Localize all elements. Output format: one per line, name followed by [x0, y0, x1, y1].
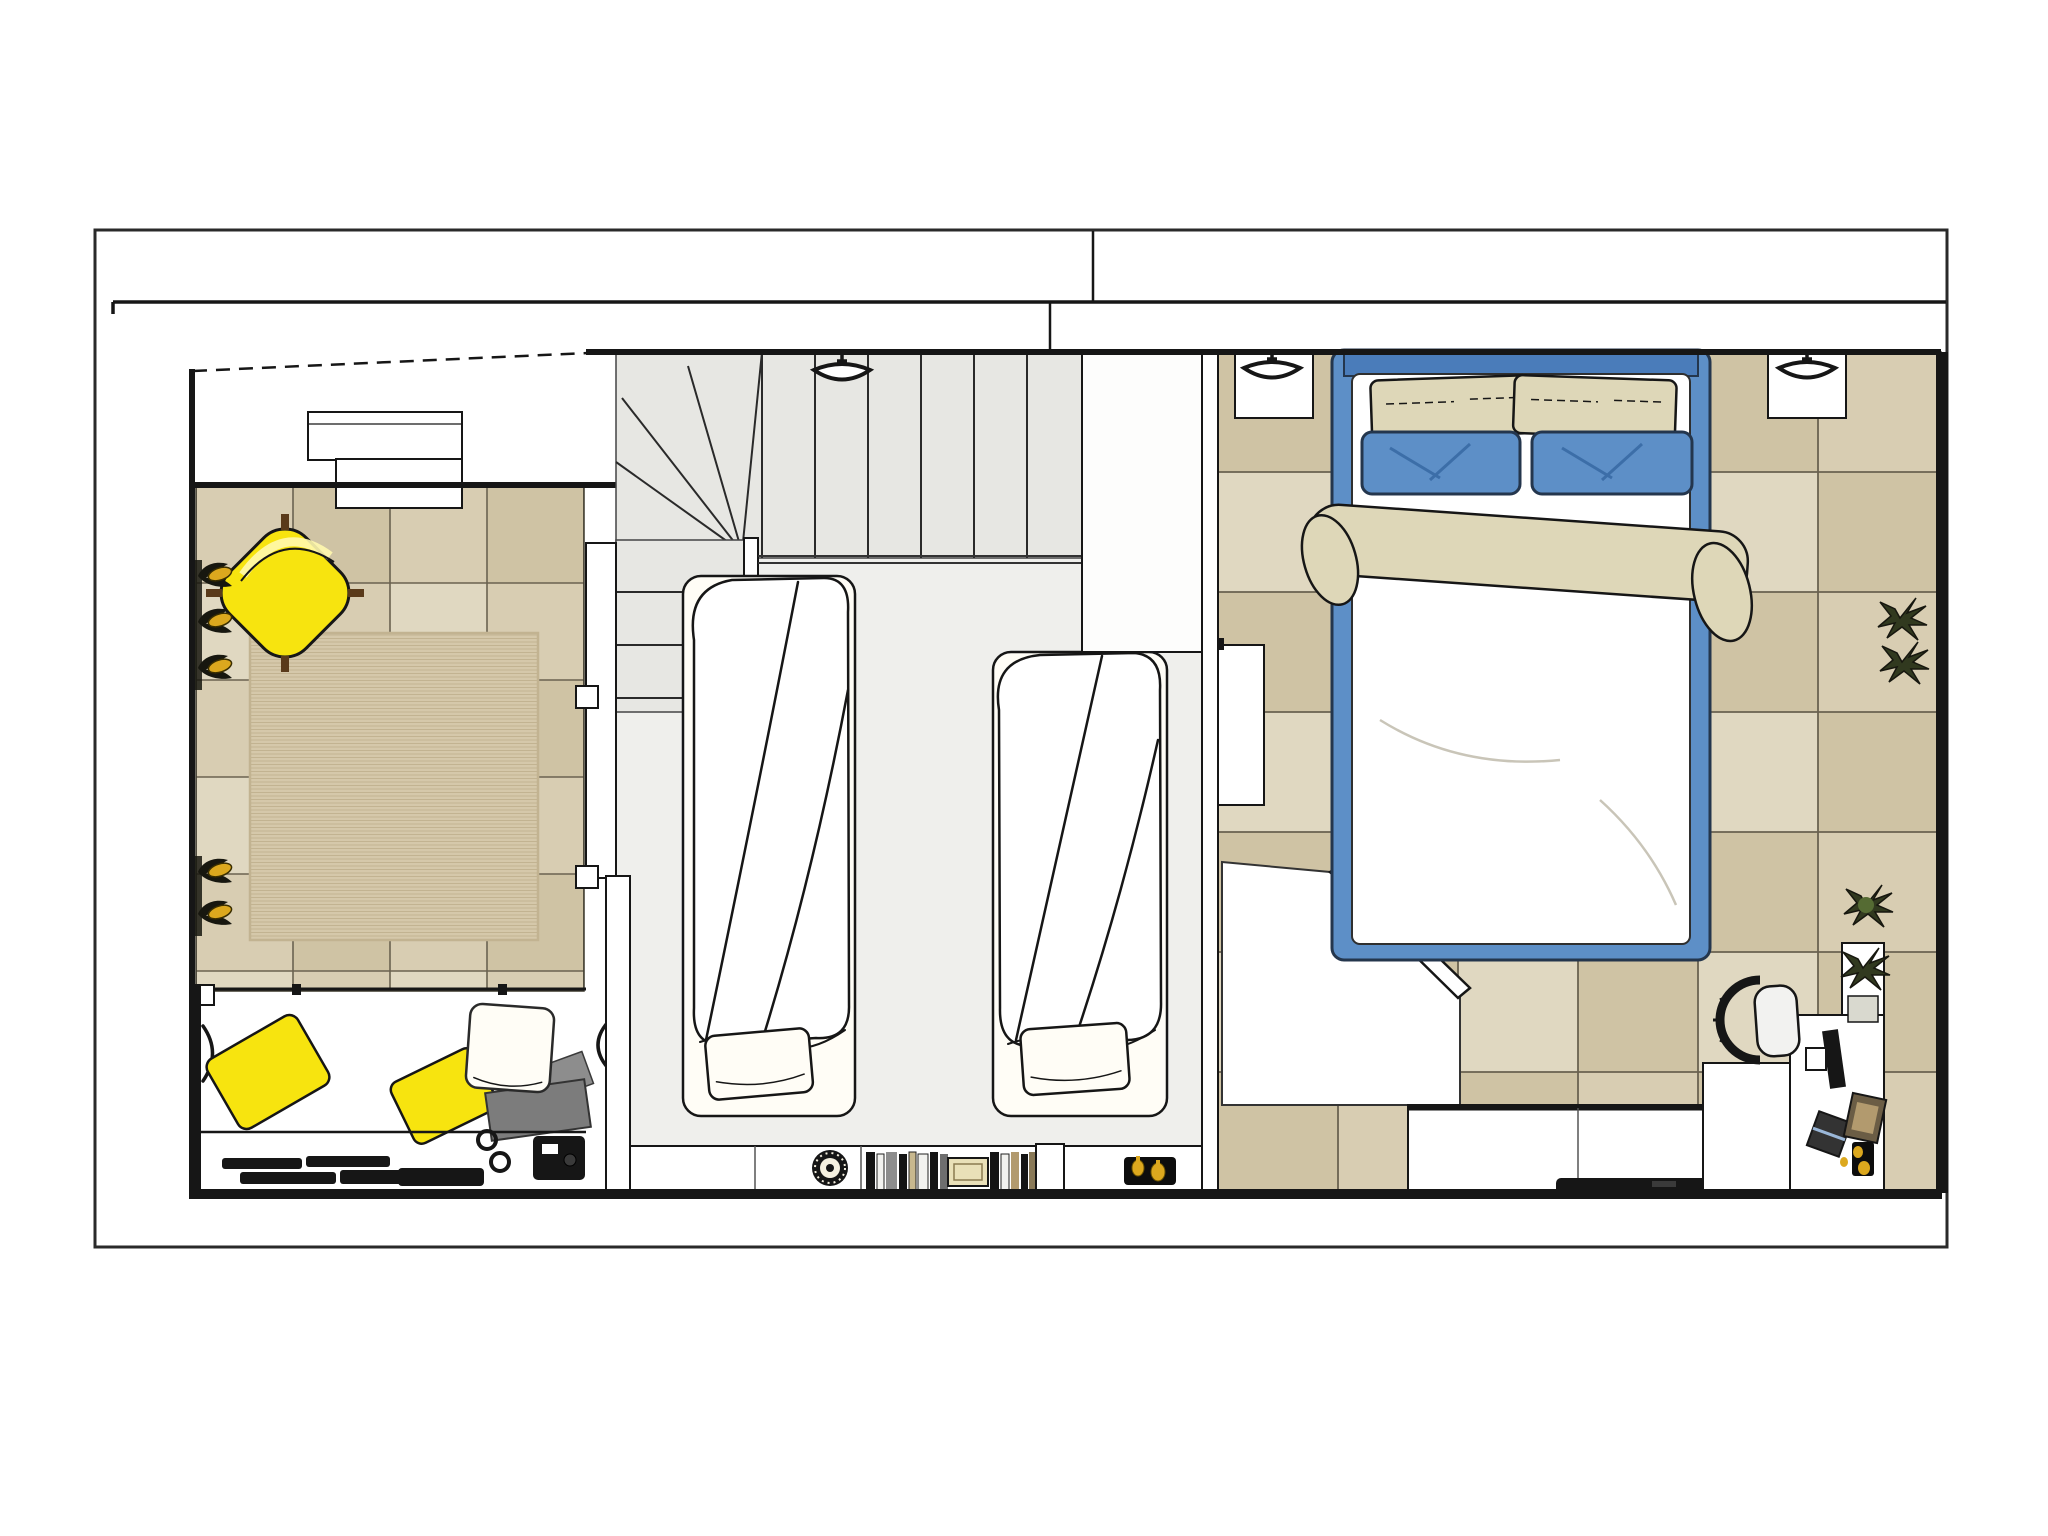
wall-between-bedrooms	[1202, 352, 1218, 1193]
rug	[250, 633, 538, 940]
twin-room-shelf	[628, 1144, 1202, 1192]
wall-south	[189, 1189, 1942, 1199]
armchair-leg	[206, 589, 222, 597]
stair-upper-flight	[616, 352, 1082, 558]
floor-plan-svg	[0, 0, 2048, 1536]
wall-partition-west-lower	[606, 876, 630, 1192]
bed-headboard	[1344, 352, 1698, 376]
wall-east	[1936, 352, 1948, 1193]
perfume-tray	[1124, 1156, 1176, 1185]
wall-rooms-north	[586, 349, 1941, 355]
pillow-blue-right	[1532, 432, 1692, 494]
pillow-blue-left	[1362, 432, 1520, 494]
desk-box	[1848, 996, 1878, 1022]
bed2-pillow	[1020, 1022, 1130, 1095]
chair-seat	[1754, 985, 1801, 1058]
av-device	[398, 1168, 484, 1186]
bed2-duvet	[998, 653, 1161, 1046]
shelf-wall-gap	[1036, 1144, 1064, 1192]
tall-cabinet	[1218, 645, 1264, 805]
wall-partition-west-upper	[586, 543, 616, 878]
bed1-duvet	[693, 578, 849, 1044]
armchair-leg	[281, 514, 289, 530]
bed1-pillow	[704, 1028, 813, 1101]
master-bedroom	[1212, 350, 1941, 1195]
wall-living-north	[190, 482, 616, 488]
newel-post	[576, 686, 598, 708]
twin-bedroom	[576, 352, 1202, 1192]
pillow-cream-left	[1370, 375, 1534, 439]
av-device	[306, 1156, 390, 1167]
twin-bed-2	[993, 652, 1167, 1116]
floor-plan-page	[0, 0, 2048, 1536]
master-bed	[1292, 350, 1761, 960]
armchair-leg	[281, 656, 289, 672]
av-device	[240, 1172, 336, 1184]
wall-west-thick	[189, 985, 201, 1193]
counter	[1703, 1063, 1790, 1192]
armchair-leg	[348, 589, 364, 597]
closet-column	[1082, 352, 1202, 652]
av-device	[222, 1158, 302, 1169]
newel-post	[576, 866, 598, 888]
keyboard	[1806, 1048, 1826, 1070]
pillow-cream-right	[1513, 375, 1677, 439]
camera	[533, 1136, 585, 1180]
twin-bed-1	[683, 576, 855, 1116]
